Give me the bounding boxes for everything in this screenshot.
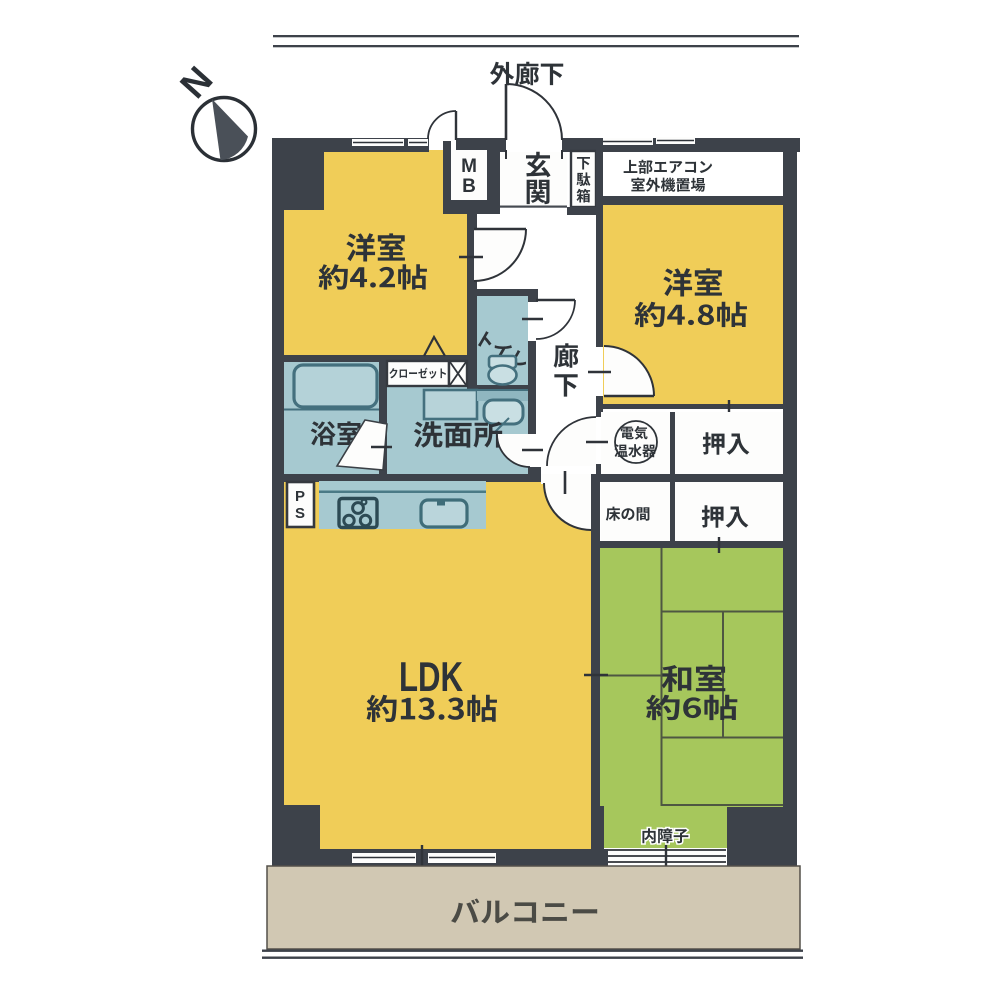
svg-text:S: S bbox=[295, 505, 305, 522]
svg-text:P: P bbox=[295, 488, 305, 505]
svg-text:LDK: LDK bbox=[399, 653, 463, 700]
svg-text:B: B bbox=[462, 176, 476, 197]
svg-text:M: M bbox=[461, 156, 477, 177]
